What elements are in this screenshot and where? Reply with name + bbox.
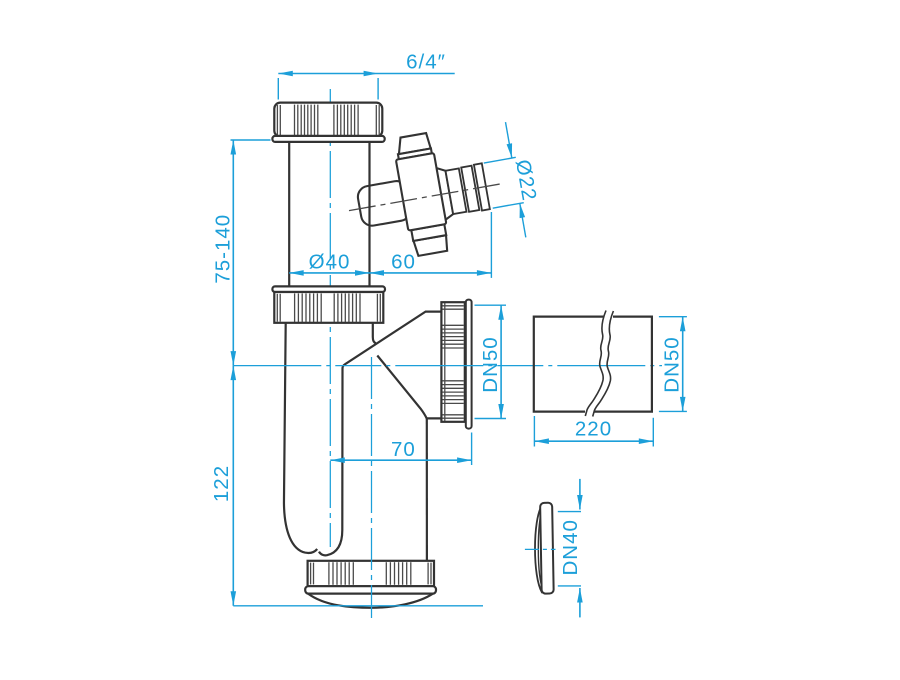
svg-text:220: 220 bbox=[575, 418, 612, 441]
svg-text:Ø40: Ø40 bbox=[309, 251, 351, 274]
svg-text:70: 70 bbox=[391, 438, 416, 461]
svg-text:60: 60 bbox=[391, 251, 416, 274]
svg-text:75-140: 75-140 bbox=[212, 214, 235, 284]
svg-text:DN40: DN40 bbox=[559, 519, 582, 575]
svg-text:122: 122 bbox=[210, 465, 233, 502]
svg-text:DN50: DN50 bbox=[479, 336, 502, 392]
svg-text:6/4″: 6/4″ bbox=[406, 51, 446, 74]
svg-text:DN50: DN50 bbox=[661, 336, 684, 392]
